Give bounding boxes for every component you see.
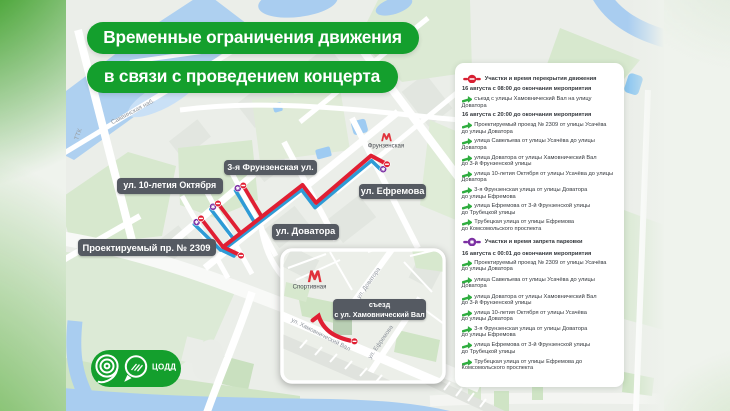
svg-text:Спортивная: Спортивная [293,283,327,290]
svg-text:ЦОДД: ЦОДД [152,362,176,371]
svg-text:Фрунзенская: Фрунзенская [368,143,404,150]
